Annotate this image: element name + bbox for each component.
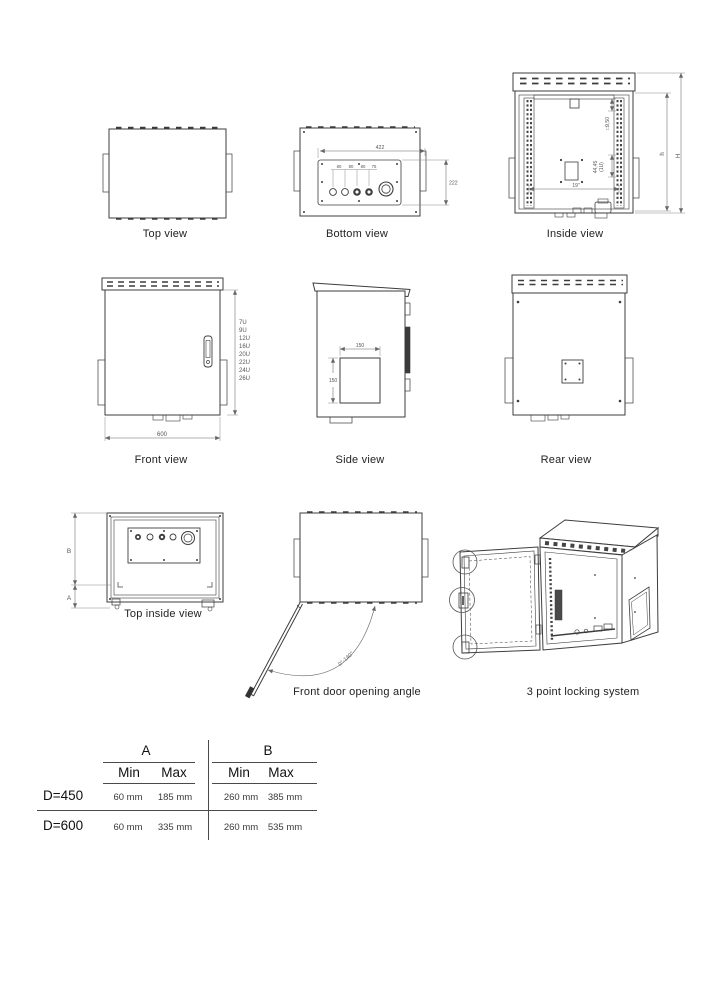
dim-hole-2: 80 <box>349 164 354 169</box>
door-angle-drawing: 0°-140° <box>235 500 445 710</box>
dim-hole-1: 80 <box>337 164 342 169</box>
table-subheader-max-b: Max <box>268 765 294 780</box>
unit-20u: 20U <box>239 352 250 358</box>
table-subheader-max-a: Max <box>161 765 187 780</box>
unit-26u: 26U <box>239 376 250 382</box>
locking-system-drawing <box>445 500 670 680</box>
dim-pitch-1u: (1U) <box>599 162 605 172</box>
table-cell: 60 mm <box>113 792 142 803</box>
top-inside-view-caption: Top inside view <box>124 608 202 620</box>
bottom-view-caption: Bottom view <box>326 228 388 240</box>
inside-view-drawing: □9,50 44,45 (1U) 19" h H <box>495 65 695 225</box>
front-view-drawing: 7U 9U 12U 16U 20U 22U 24U 26U 600 <box>90 270 265 450</box>
side-view-drawing: 150 150 <box>300 270 425 450</box>
inside-view-caption: Inside view <box>547 228 604 240</box>
unit-16u: 16U <box>239 344 250 350</box>
rear-view-caption: Rear view <box>541 454 592 466</box>
top-view-drawing <box>95 120 245 230</box>
dim-422: 422 <box>376 145 385 151</box>
dim-cutout-h: 150 <box>329 378 338 384</box>
table-row-label-d450: D=450 <box>43 788 83 803</box>
top-inside-view-drawing: B A <box>60 500 245 620</box>
table-group-b: B <box>263 743 272 758</box>
dim-cutout-w: 150 <box>356 343 365 349</box>
unit-7u: 7U <box>239 320 247 326</box>
dim-222: 222 <box>449 181 458 187</box>
table-line <box>103 762 195 763</box>
dim-hole-3: 80 <box>361 164 366 169</box>
dim-H: H <box>676 154 682 158</box>
table-subheader-min-a: Min <box>118 765 140 780</box>
unit-22u: 22U <box>239 360 250 366</box>
table-line <box>212 762 317 763</box>
table-line <box>103 783 195 784</box>
dim-hole-4: 75 <box>372 164 377 169</box>
dim-a: A <box>67 595 72 602</box>
dim-b: B <box>67 548 71 555</box>
table-group-a: A <box>141 743 150 758</box>
locking-system-caption: 3 point locking system <box>527 686 640 698</box>
table-subheader-min-b: Min <box>228 765 250 780</box>
table-divider <box>208 740 209 840</box>
table-cell: 535 mm <box>268 822 302 833</box>
top-view-caption: Top view <box>143 228 187 240</box>
table-line <box>212 783 317 784</box>
unit-24u: 24U <box>239 368 250 374</box>
unit-9u: 9U <box>239 328 247 334</box>
table-cell: 260 mm <box>224 792 258 803</box>
drawing-sheet: Top view <box>0 0 708 1000</box>
unit-12u: 12U <box>239 336 250 342</box>
bottom-view-drawing: 422 222 80 80 80 75 <box>285 120 470 230</box>
table-cell: 335 mm <box>158 822 192 833</box>
dim-h: h <box>660 152 666 155</box>
table-row-label-d600: D=600 <box>43 818 83 833</box>
table-cell: 185 mm <box>158 792 192 803</box>
dim-door-angle: 0°-140° <box>337 651 355 668</box>
table-cell: 60 mm <box>113 822 142 833</box>
rear-view-drawing <box>495 270 640 450</box>
door-angle-caption: Front door opening angle <box>293 686 421 698</box>
table-cell: 260 mm <box>224 822 258 833</box>
dim-19inch: 19" <box>572 183 580 189</box>
dim-600: 600 <box>157 432 168 438</box>
front-view-caption: Front view <box>135 454 188 466</box>
table-cell: 385 mm <box>268 792 302 803</box>
table-line <box>37 810 317 811</box>
side-view-caption: Side view <box>336 454 385 466</box>
dim-hole-square: □9,50 <box>605 117 611 130</box>
